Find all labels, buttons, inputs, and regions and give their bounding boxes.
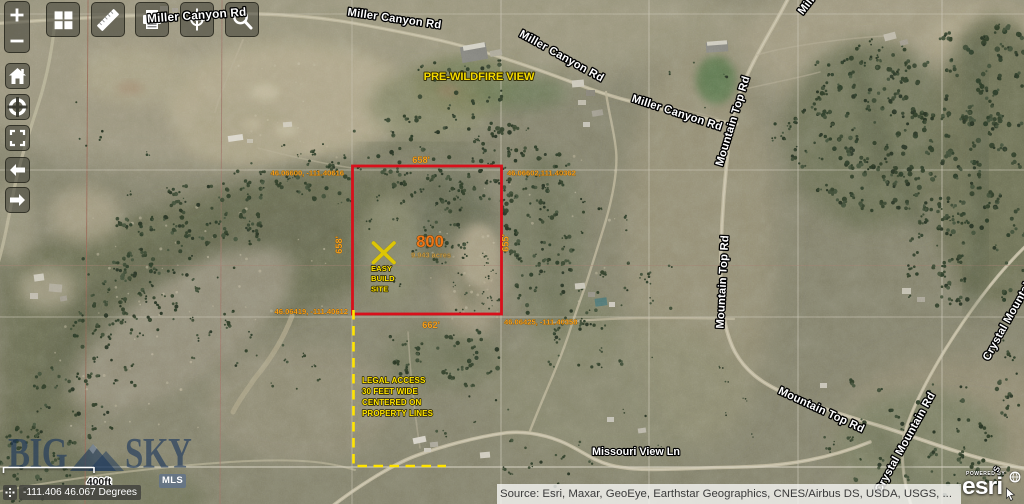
svg-text:S: S <box>991 464 1003 474</box>
svg-text:46.06602,111.40362: 46.06602,111.40362 <box>507 169 576 178</box>
svg-text:Miller Canyon Rd: Miller Canyon Rd <box>147 5 247 26</box>
svg-text:662': 662' <box>422 320 440 330</box>
svg-text:655': 655' <box>501 234 511 252</box>
svg-text:BUILD: BUILD <box>371 274 395 283</box>
svg-text:800: 800 <box>416 233 444 251</box>
svg-text:658': 658' <box>412 155 430 165</box>
svg-text:Missouri View Ln: Missouri View Ln <box>592 446 680 458</box>
svg-text:30 FEET WIDE: 30 FEET WIDE <box>362 387 418 396</box>
svg-text:46.06419, -111.40612: 46.06419, -111.40612 <box>275 307 348 316</box>
svg-text:PRE-WILDFIRE VIEW: PRE-WILDFIRE VIEW <box>424 71 535 83</box>
svg-text:9.943 acres: 9.943 acres <box>411 251 451 260</box>
svg-text:SITE: SITE <box>371 285 388 294</box>
svg-text:CENTERED ON: CENTERED ON <box>362 398 421 407</box>
svg-text:46.06600, -111.40616: 46.06600, -111.40616 <box>271 169 344 178</box>
svg-text:EASY: EASY <box>371 264 392 273</box>
svg-text:PROPERTY LINES: PROPERTY LINES <box>362 409 434 418</box>
svg-text:658': 658' <box>334 236 344 254</box>
svg-text:46.06425, -111.40358: 46.06425, -111.40358 <box>504 318 577 327</box>
svg-text:LEGAL ACCESS: LEGAL ACCESS <box>362 376 426 385</box>
